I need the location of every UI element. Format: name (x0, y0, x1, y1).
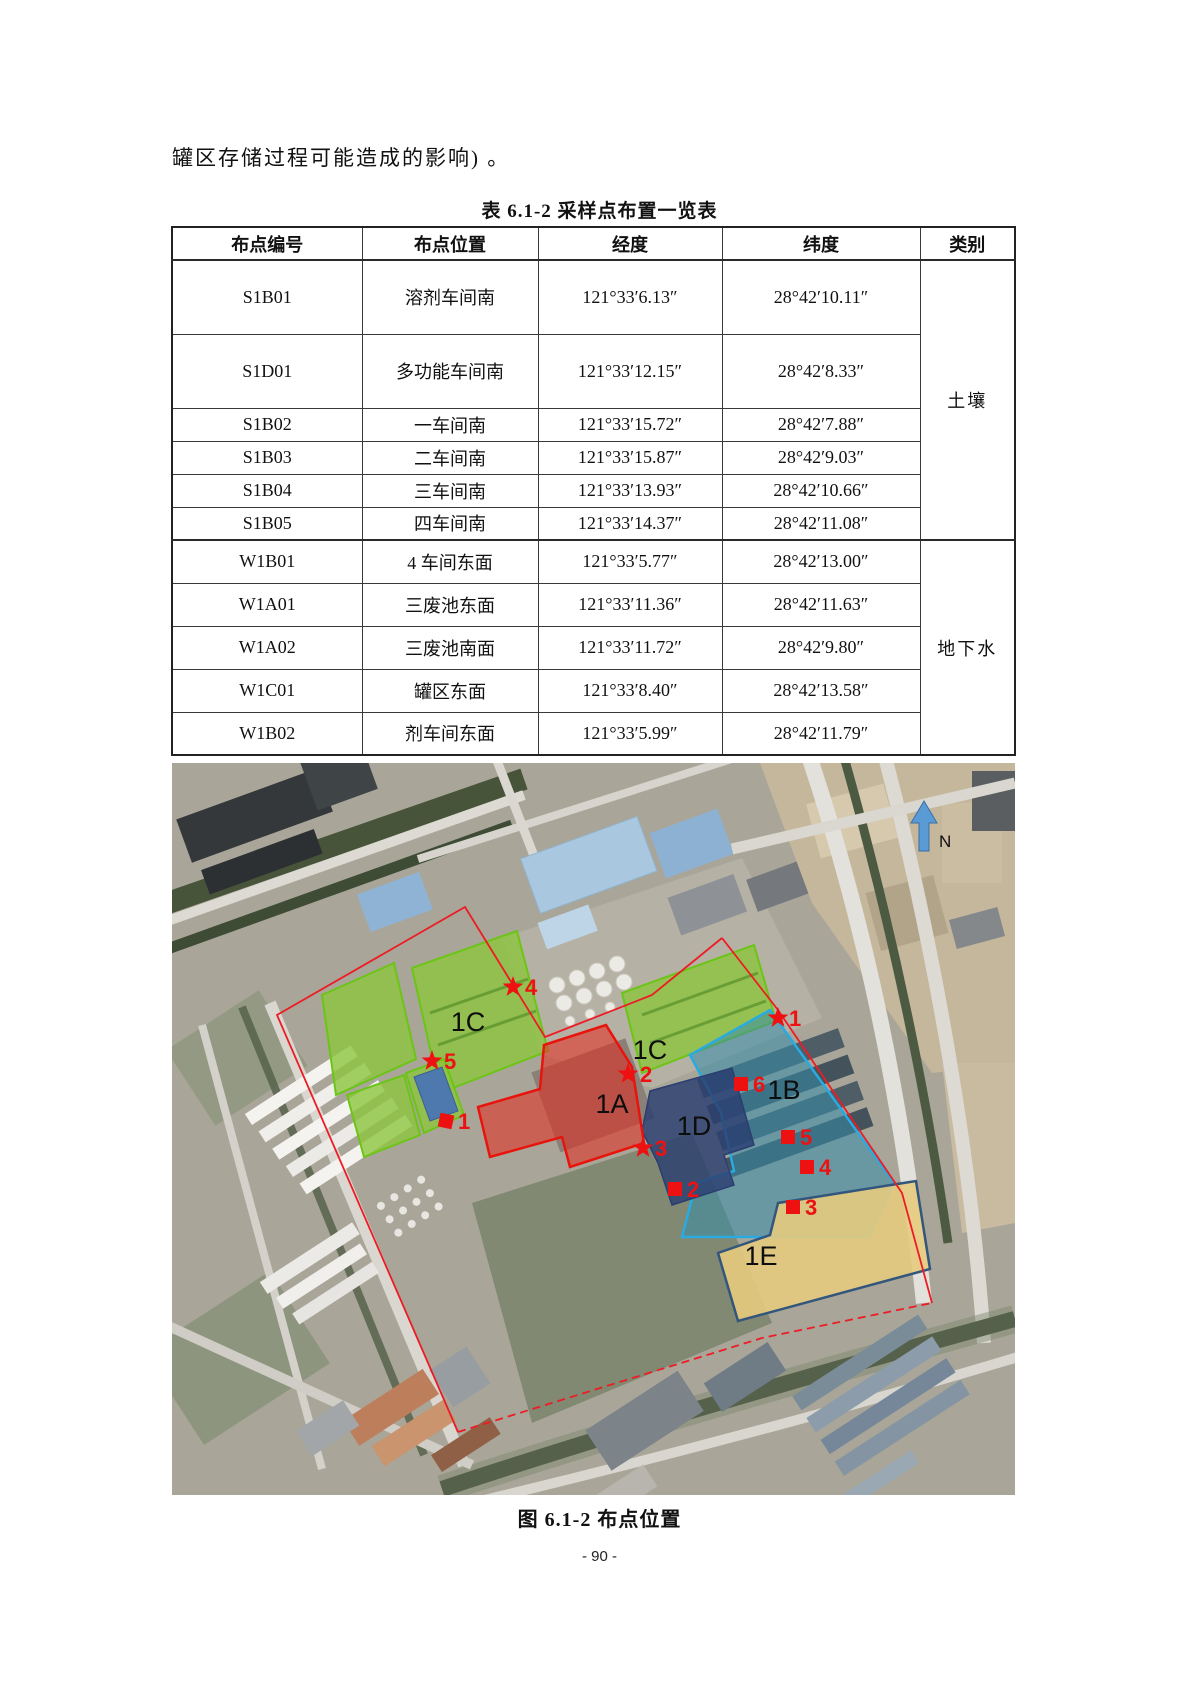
zone-label-1d: 1D (677, 1111, 712, 1141)
table-row: W1B02 剂车间东面 121°33′5.99″ 28°42′11.79″ (172, 712, 1015, 755)
cell-location: 4 车间东面 (362, 540, 538, 583)
groundwater-point-square (668, 1182, 682, 1196)
table-row: W1A01 三废池东面 121°33′11.36″ 28°42′11.63″ (172, 583, 1015, 626)
cell-longitude: 121°33′14.37″ (538, 507, 722, 540)
groundwater-point-label: 3 (805, 1195, 817, 1220)
col-header-longitude: 经度 (538, 227, 722, 260)
cell-latitude: 28°42′9.80″ (722, 626, 920, 669)
sampling-points-table: 布点编号 布点位置 经度 纬度 类别 S1B01 溶剂车间南 121°33′6.… (171, 226, 1016, 756)
zone-label-1c-left: 1C (451, 1007, 486, 1037)
cell-latitude: 28°42′9.03″ (722, 441, 920, 474)
cell-id: S1B04 (172, 474, 362, 507)
soil-point-label: 3 (655, 1136, 667, 1161)
report-page: 罐区存储过程可能造成的影响) 。 表 6.1-2 采样点布置一览表 布点编号 布… (0, 0, 1199, 1696)
satellite-map: N 1C 1C 1A 1B 1D 1E 1 2 3 4 5 (172, 763, 1015, 1495)
cell-id: S1B01 (172, 260, 362, 334)
cell-location: 三废池东面 (362, 583, 538, 626)
cell-location: 三车间南 (362, 474, 538, 507)
cell-latitude: 28°42′10.66″ (722, 474, 920, 507)
cell-latitude: 28°42′7.88″ (722, 408, 920, 441)
groundwater-point-square (800, 1160, 814, 1174)
groundwater-point-square (438, 1113, 455, 1130)
page-number: - 90 - (0, 1548, 1199, 1565)
cell-longitude: 121°33′15.87″ (538, 441, 722, 474)
table-title: 表 6.1-2 采样点布置一览表 (0, 196, 1199, 223)
table-row: W1C01 罐区东面 121°33′8.40″ 28°42′13.58″ (172, 669, 1015, 712)
cell-location: 二车间南 (362, 441, 538, 474)
cell-latitude: 28°42′11.63″ (722, 583, 920, 626)
cell-longitude: 121°33′8.40″ (538, 669, 722, 712)
col-header-category: 类别 (920, 227, 1015, 260)
soil-point-label: 5 (444, 1049, 456, 1074)
figure-caption: 图 6.1-2 布点位置 (0, 1503, 1199, 1532)
cell-location: 三废池南面 (362, 626, 538, 669)
cell-location: 剂车间东面 (362, 712, 538, 755)
cell-location: 四车间南 (362, 507, 538, 540)
table-row: W1A02 三废池南面 121°33′11.72″ 28°42′9.80″ (172, 626, 1015, 669)
table-row: W1B01 4 车间东面 121°33′5.77″ 28°42′13.00″ 地… (172, 540, 1015, 583)
col-header-latitude: 纬度 (722, 227, 920, 260)
cell-longitude: 121°33′13.93″ (538, 474, 722, 507)
cell-id: S1D01 (172, 334, 362, 408)
table-row: S1B03 二车间南 121°33′15.87″ 28°42′9.03″ (172, 441, 1015, 474)
cell-location: 溶剂车间南 (362, 260, 538, 334)
cell-location: 一车间南 (362, 408, 538, 441)
cell-id: S1B02 (172, 408, 362, 441)
soil-point-label: 4 (525, 975, 538, 1000)
col-header-location: 布点位置 (362, 227, 538, 260)
category-soil-cell: 土壤 (920, 260, 1015, 540)
cell-latitude: 28°42′13.00″ (722, 540, 920, 583)
cell-location: 罐区东面 (362, 669, 538, 712)
cell-latitude: 28°42′10.11″ (722, 260, 920, 334)
table-row: S1B02 一车间南 121°33′15.72″ 28°42′7.88″ (172, 408, 1015, 441)
cell-id: W1A02 (172, 626, 362, 669)
groundwater-point-label: 2 (687, 1177, 699, 1202)
category-groundwater-cell: 地下水 (920, 540, 1015, 755)
soil-point-label: 1 (789, 1006, 801, 1031)
cell-latitude: 28°42′8.33″ (722, 334, 920, 408)
zone-label-1c-right: 1C (633, 1035, 668, 1065)
intro-text: 罐区存储过程可能造成的影响) 。 (172, 142, 1032, 172)
cell-longitude: 121°33′11.72″ (538, 626, 722, 669)
cell-longitude: 121°33′11.36″ (538, 583, 722, 626)
cell-latitude: 28°42′11.08″ (722, 507, 920, 540)
cell-id: W1B02 (172, 712, 362, 755)
groundwater-point-square (781, 1130, 795, 1144)
cell-id: W1C01 (172, 669, 362, 712)
table-row: S1B04 三车间南 121°33′13.93″ 28°42′10.66″ (172, 474, 1015, 507)
cell-location: 多功能车间南 (362, 334, 538, 408)
zone-label-1b: 1B (767, 1075, 800, 1105)
site-map-figure: N 1C 1C 1A 1B 1D 1E 1 2 3 4 5 (172, 763, 1015, 1495)
zone-label-1a: 1A (595, 1089, 628, 1119)
cell-latitude: 28°42′13.58″ (722, 669, 920, 712)
cell-longitude: 121°33′15.72″ (538, 408, 722, 441)
groundwater-point-label: 6 (753, 1072, 765, 1097)
cell-longitude: 121°33′12.15″ (538, 334, 722, 408)
col-header-id: 布点编号 (172, 227, 362, 260)
soil-point-label: 2 (640, 1062, 652, 1087)
groundwater-point-label: 5 (800, 1125, 812, 1150)
table-row: S1B01 溶剂车间南 121°33′6.13″ 28°42′10.11″ 土壤 (172, 260, 1015, 334)
table-row: S1B05 四车间南 121°33′14.37″ 28°42′11.08″ (172, 507, 1015, 540)
cell-latitude: 28°42′11.79″ (722, 712, 920, 755)
cell-longitude: 121°33′6.13″ (538, 260, 722, 334)
cell-id: W1B01 (172, 540, 362, 583)
groundwater-point-square (786, 1200, 800, 1214)
groundwater-point-label: 1 (458, 1109, 470, 1134)
cell-id: S1B03 (172, 441, 362, 474)
cell-longitude: 121°33′5.77″ (538, 540, 722, 583)
cell-id: S1B05 (172, 507, 362, 540)
table-header-row: 布点编号 布点位置 经度 纬度 类别 (172, 227, 1015, 260)
cell-id: W1A01 (172, 583, 362, 626)
north-label: N (939, 832, 951, 851)
groundwater-point-square (734, 1077, 748, 1091)
table-row: S1D01 多功能车间南 121°33′12.15″ 28°42′8.33″ (172, 334, 1015, 408)
cell-longitude: 121°33′5.99″ (538, 712, 722, 755)
groundwater-point-label: 4 (819, 1155, 832, 1180)
zone-label-1e: 1E (744, 1241, 777, 1271)
